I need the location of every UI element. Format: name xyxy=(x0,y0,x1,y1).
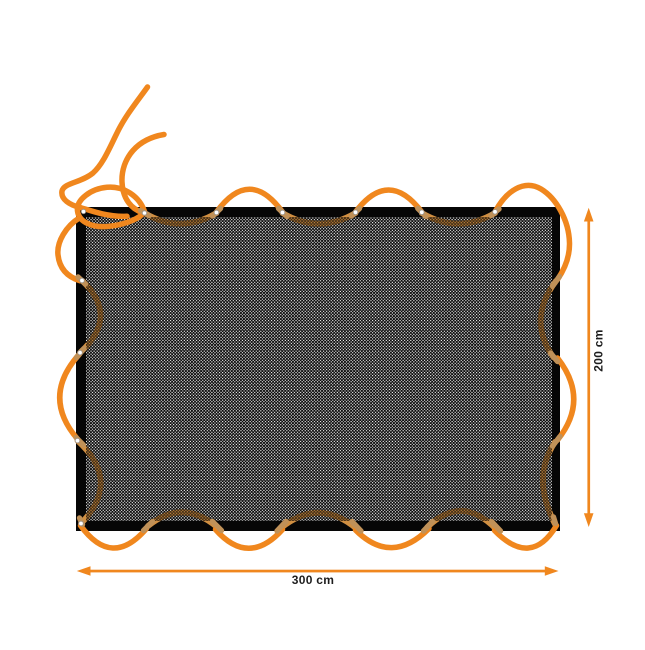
svg-text:300 cm: 300 cm xyxy=(292,573,335,587)
svg-text:200 cm: 200 cm xyxy=(591,329,605,372)
